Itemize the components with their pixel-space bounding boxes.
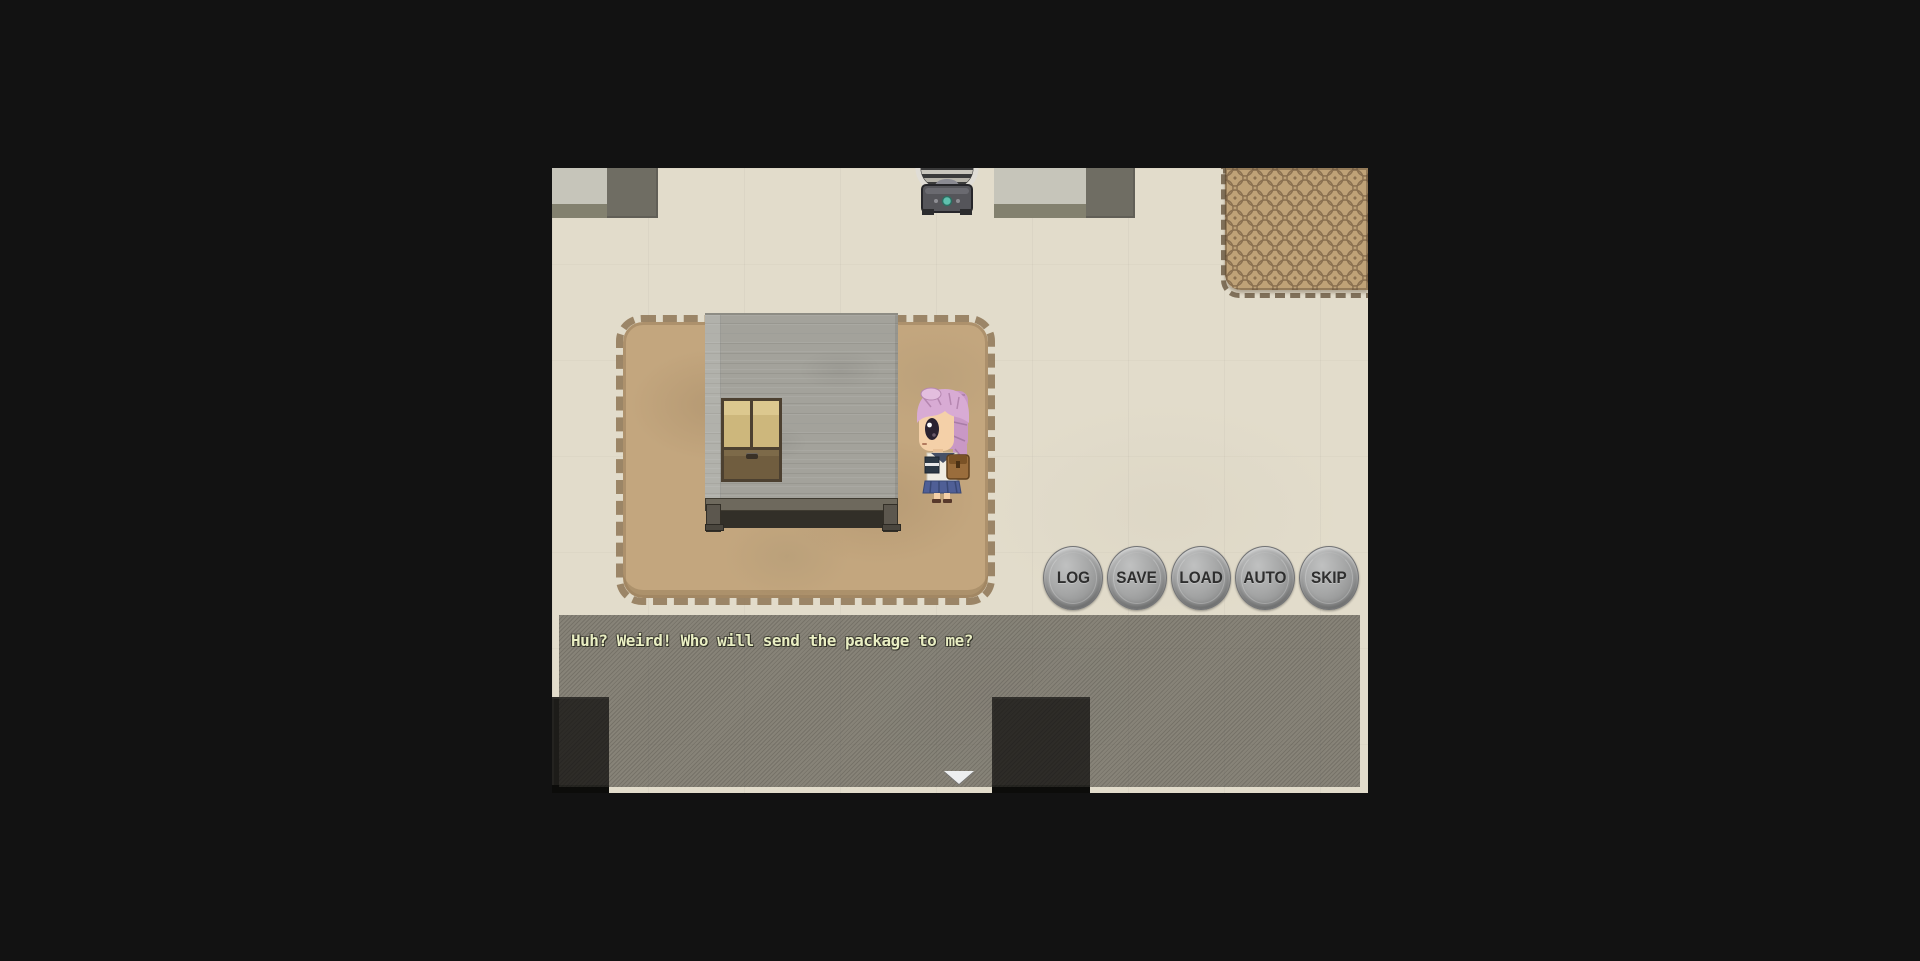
patterned-rug xyxy=(1225,168,1368,290)
continue-arrow-icon xyxy=(944,771,974,784)
bench-leg-right xyxy=(883,504,898,532)
counter-front-left xyxy=(552,204,607,218)
lamp-power-light xyxy=(943,197,952,206)
menu-button-row: LOG SAVE LOAD AUTO SKIP xyxy=(1043,546,1359,610)
game-viewport: LOG SAVE LOAD AUTO SKIP Huh? Weird! Who … xyxy=(552,168,1368,793)
window-lower-panel xyxy=(724,448,779,479)
patterned-rug-texture xyxy=(1225,168,1368,290)
window-pane-left xyxy=(724,401,750,447)
load-button[interactable]: LOAD xyxy=(1171,546,1231,610)
log-button-label: LOG xyxy=(1056,568,1089,588)
counter-top-right xyxy=(994,168,1086,204)
skip-button-label: SKIP xyxy=(1311,568,1347,588)
counter-front-right xyxy=(994,204,1086,218)
window-frame xyxy=(721,398,782,482)
dark-cabinet-right xyxy=(1086,168,1135,218)
skip-button[interactable]: SKIP xyxy=(1299,546,1359,610)
save-button-label: SAVE xyxy=(1117,568,1158,588)
auto-button[interactable]: AUTO xyxy=(1235,546,1295,610)
load-button-label: LOAD xyxy=(1179,568,1222,588)
counter-top-left xyxy=(552,168,607,204)
bench-top xyxy=(705,498,898,511)
log-button[interactable]: LOG xyxy=(1043,546,1103,610)
auto-button-label: AUTO xyxy=(1243,568,1286,588)
window-panes xyxy=(724,401,779,447)
player-character xyxy=(917,387,973,503)
window-pane-right xyxy=(753,401,779,447)
divider-wall xyxy=(705,313,898,498)
dialogue-text: Huh? Weird! Who will send the package to… xyxy=(571,631,973,651)
dark-cabinet-left xyxy=(607,168,658,218)
bench-leg-left xyxy=(706,504,721,532)
save-button[interactable]: SAVE xyxy=(1107,546,1167,610)
dialogue-box[interactable]: Huh? Weird! Who will send the package to… xyxy=(559,615,1360,787)
bench-shadow xyxy=(718,511,885,528)
page-background: { "game": { "menu_buttons": [ { "label":… xyxy=(0,0,1920,961)
desk-lamp xyxy=(915,168,979,220)
window-handle xyxy=(746,453,758,459)
